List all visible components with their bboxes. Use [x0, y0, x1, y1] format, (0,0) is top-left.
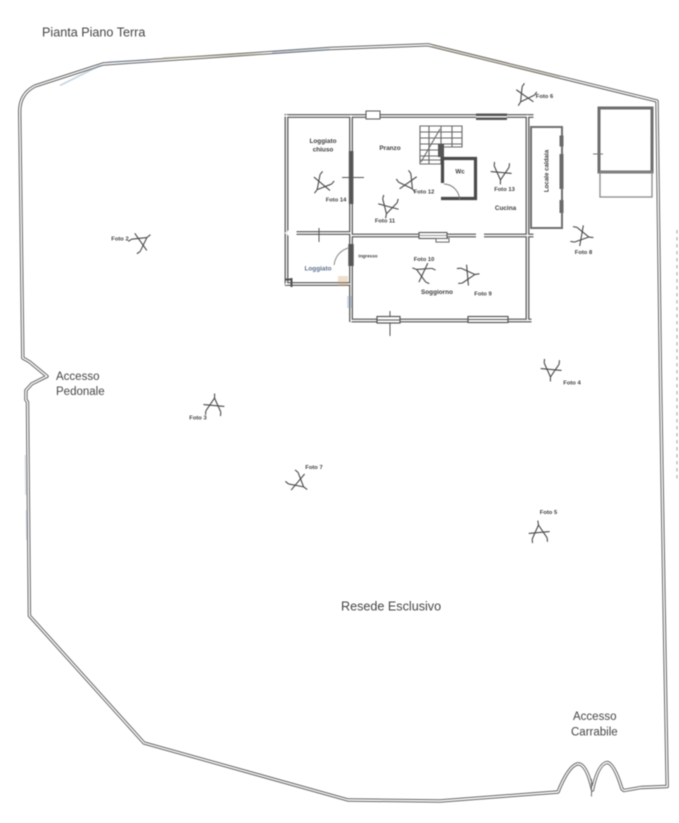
svg-text:Foto 13: Foto 13: [494, 187, 515, 193]
svg-text:Pianta Piano Terra: Pianta Piano Terra: [42, 26, 145, 40]
svg-text:Pedonale: Pedonale: [56, 386, 105, 398]
svg-text:Foto 2: Foto 2: [111, 237, 128, 243]
svg-text:Foto 5: Foto 5: [540, 510, 558, 516]
svg-text:Foto 11: Foto 11: [375, 219, 396, 225]
svg-text:chiuso: chiuso: [313, 147, 334, 154]
svg-text:Pranzo: Pranzo: [379, 145, 400, 152]
svg-text:Foto 12: Foto 12: [414, 190, 435, 196]
svg-text:Loggiato: Loggiato: [305, 266, 332, 273]
svg-text:Accesso: Accesso: [56, 371, 99, 383]
svg-text:Foto 3: Foto 3: [189, 416, 207, 422]
svg-text:Ingresso: Ingresso: [358, 254, 377, 259]
svg-text:Resede Esclusivo: Resede Esclusivo: [341, 600, 441, 614]
svg-text:Loggiato: Loggiato: [310, 138, 337, 145]
svg-text:Soggiorno: Soggiorno: [421, 289, 453, 296]
svg-text:Accesso: Accesso: [573, 711, 616, 723]
svg-text:Wc: Wc: [455, 169, 465, 176]
svg-text:Cucina: Cucina: [495, 205, 517, 212]
svg-text:Foto 10: Foto 10: [414, 257, 435, 263]
svg-text:Foto 9: Foto 9: [474, 292, 492, 298]
svg-text:Foto 4: Foto 4: [563, 381, 581, 387]
svg-text:Foto 14: Foto 14: [326, 198, 347, 204]
svg-text:Foto 8: Foto 8: [575, 250, 593, 256]
svg-text:Locale caldaia: Locale caldaia: [544, 149, 551, 192]
svg-text:Foto 7: Foto 7: [305, 465, 322, 471]
svg-text:Carrabile: Carrabile: [571, 727, 618, 739]
svg-text:Foto 6: Foto 6: [536, 94, 554, 100]
